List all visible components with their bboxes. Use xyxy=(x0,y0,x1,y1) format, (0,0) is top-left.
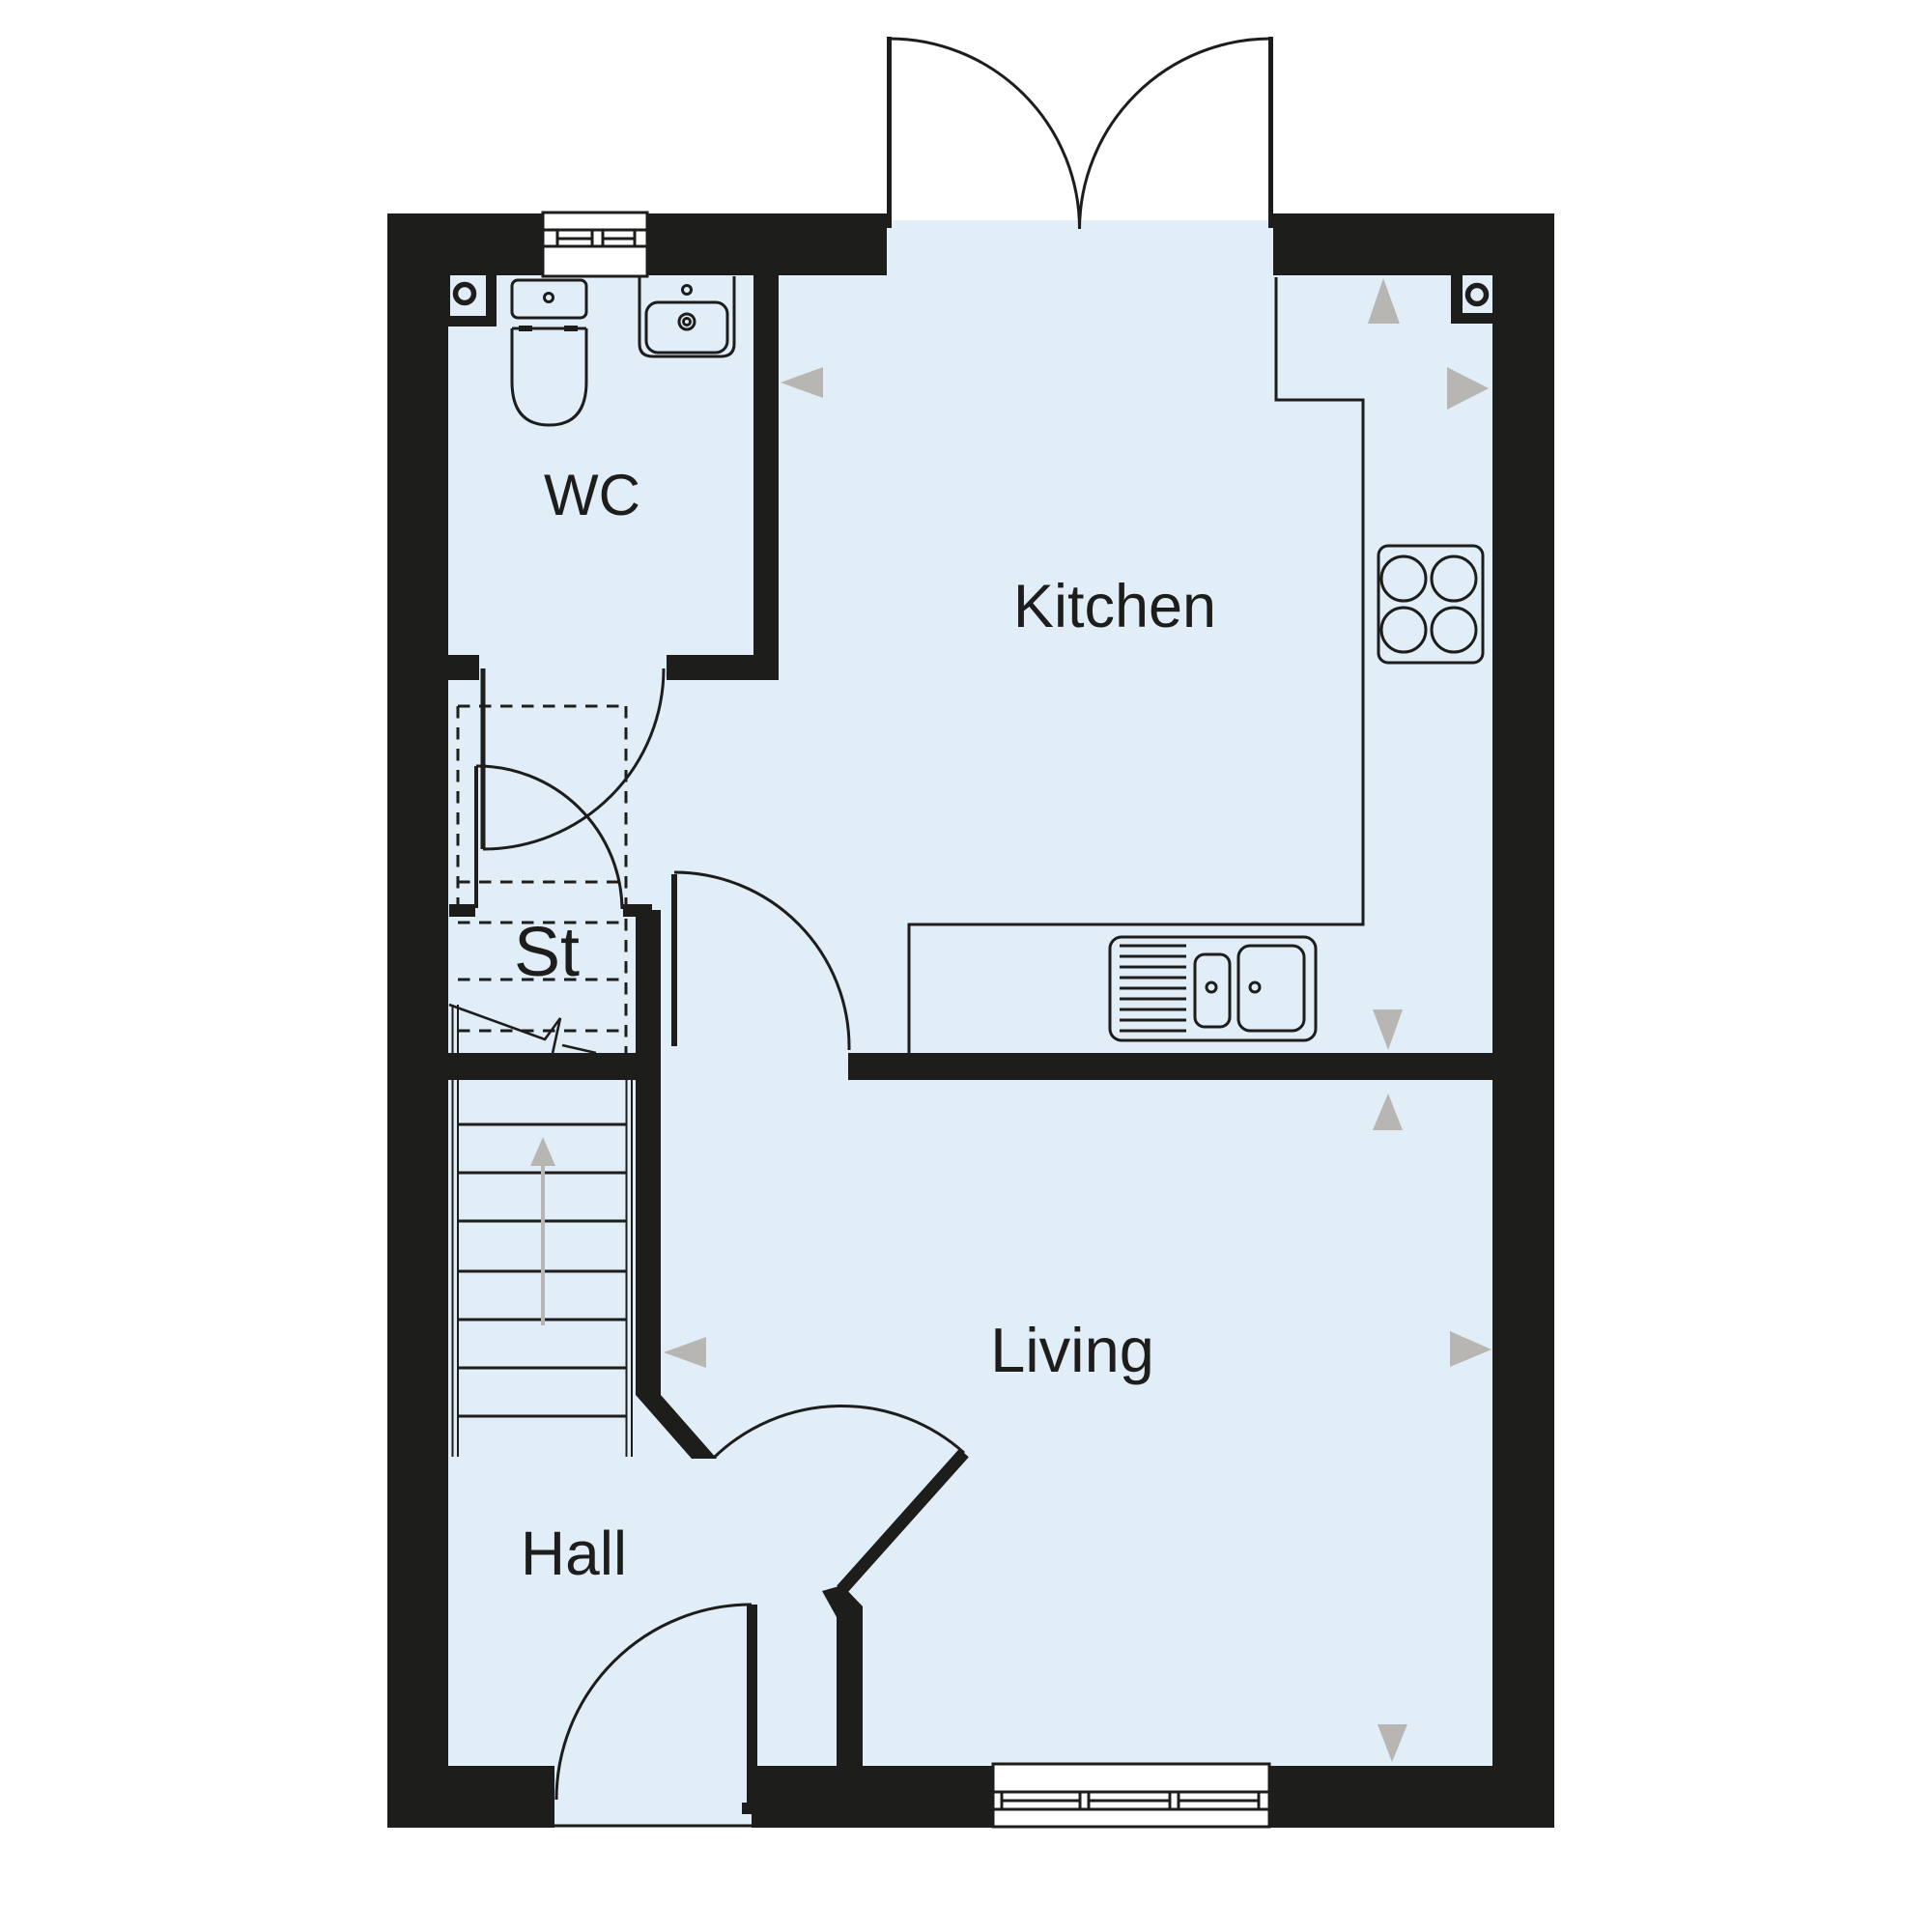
svg-text:Hall: Hall xyxy=(521,1519,627,1588)
svg-text:WC: WC xyxy=(544,463,640,527)
svg-text:St: St xyxy=(514,914,580,991)
svg-text:Living: Living xyxy=(990,1315,1154,1385)
svg-text:Kitchen: Kitchen xyxy=(1013,573,1216,640)
